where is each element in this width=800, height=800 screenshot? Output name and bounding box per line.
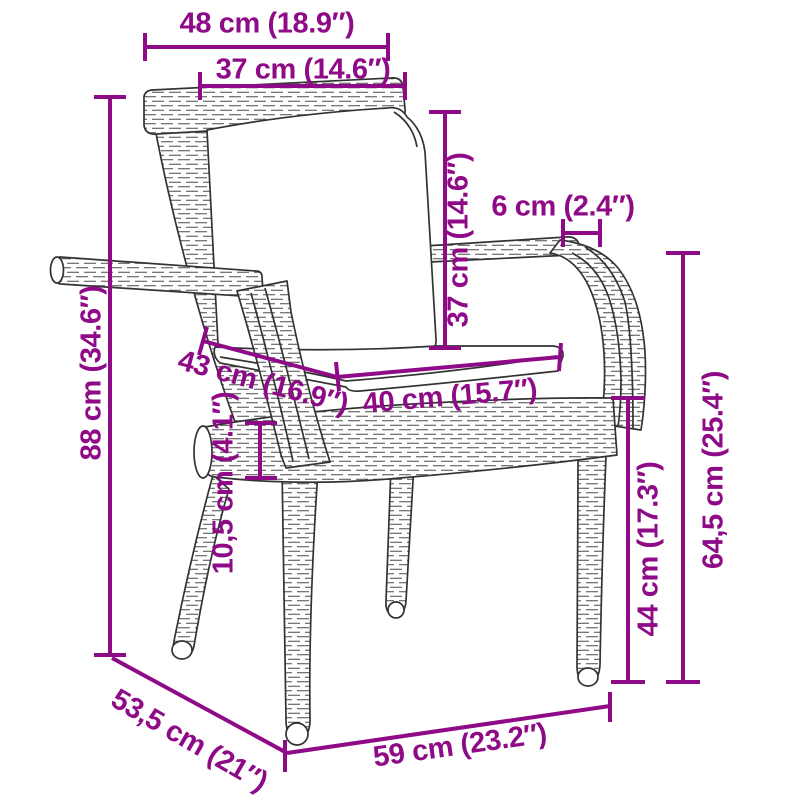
front-right-leg [577,456,606,683]
front-left-foot [286,723,308,745]
dimension-label-width-top: 48 cm (18.9″) [180,10,355,39]
chair-illustration [51,78,646,745]
back-right-leg [386,464,414,615]
back-cushion [207,108,436,357]
dimension-label-backrest-height: 37 cm (14.6″) [445,153,474,328]
dimension-label-armrest-width: 6 cm (2.4″) [491,193,634,222]
diagram-canvas: 48 cm (18.9″) 37 cm (14.6″) 37 cm (14.6″… [0,0,800,800]
back-right-foot [388,602,404,618]
dimension-label-total-height: 88 cm (34.6″) [78,286,107,461]
dim-line-armrest-height [666,253,700,682]
dimension-label-frame-thickness: 10,5 cm (4.1″) [210,392,239,574]
back-left-foot [172,641,192,659]
dimension-label-armrest-height: 64,5 cm (25.4″) [700,371,729,569]
left-armrest-end-cap [51,257,64,283]
dimension-label-backrest-width: 37 cm (14.6″) [216,56,391,85]
front-right-foot [578,668,598,686]
front-left-leg [282,467,318,738]
dimension-label-seat-height: 44 cm (17.3″) [635,462,664,637]
